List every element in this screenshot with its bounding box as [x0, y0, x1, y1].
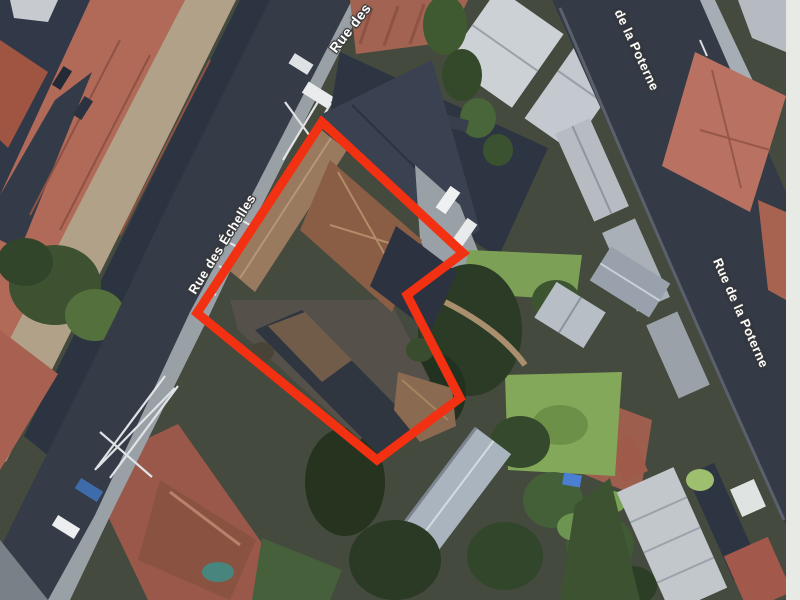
map-edge-strip: [786, 0, 800, 600]
satellite-map-canvas[interactable]: Rue des Rue des Échelles de la Poterne R…: [0, 0, 800, 600]
satellite-imagery: [0, 0, 800, 600]
